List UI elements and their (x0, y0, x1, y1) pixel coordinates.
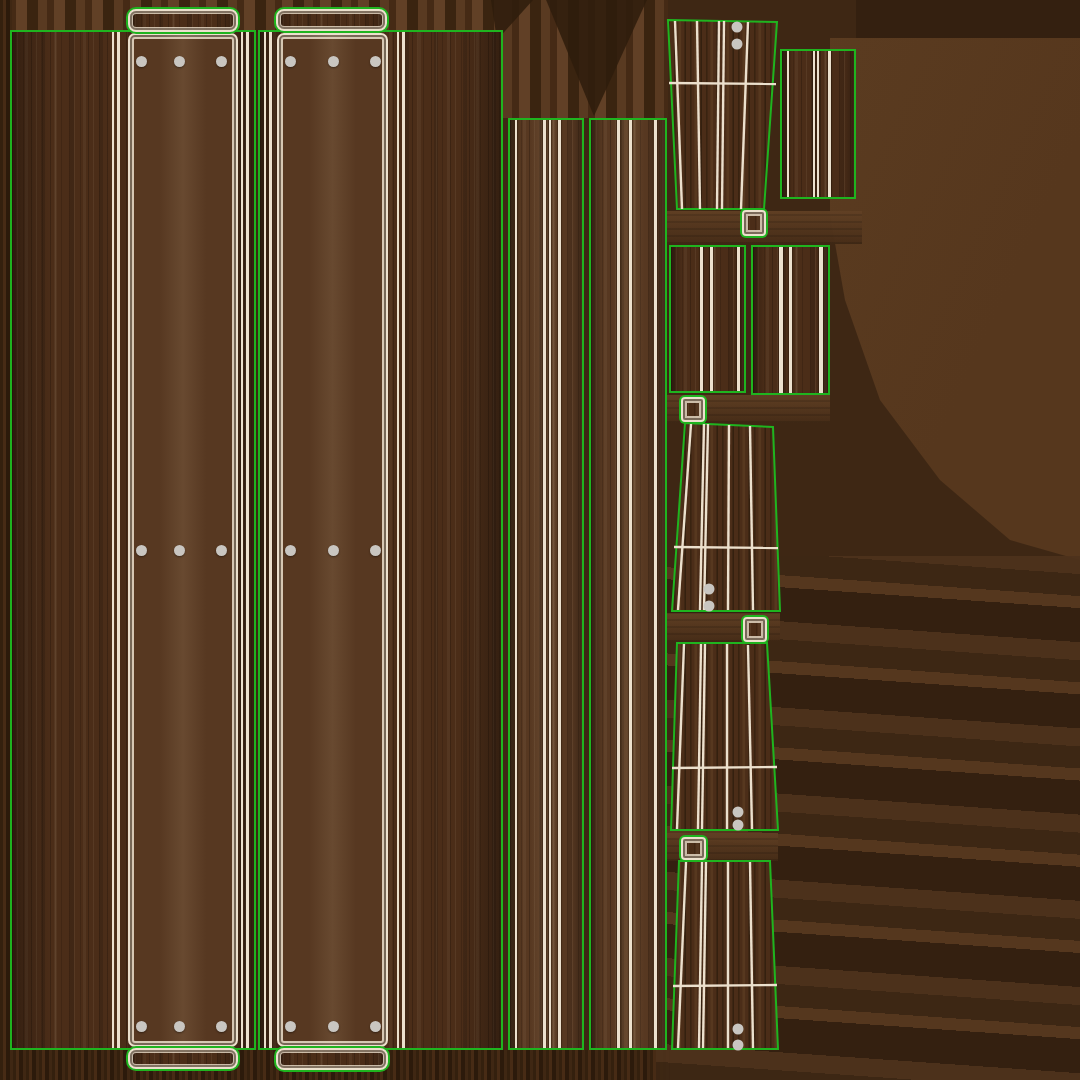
uv-island-leg-top (668, 20, 777, 209)
texture-canvas (0, 0, 1080, 1080)
bolt-dot (733, 820, 744, 831)
uv-island-leg-mid (672, 423, 780, 612)
uv-tab-bottom-left (128, 1048, 238, 1069)
bolt-dot (704, 584, 715, 595)
bolt-dot (733, 1024, 744, 1035)
bolt-dot (732, 22, 743, 33)
uv-cap-square-1 (742, 210, 766, 236)
bolt-dot (733, 1040, 744, 1051)
uv-tab-top-left (128, 9, 238, 32)
bolt-dot (733, 807, 744, 818)
uv-cap-square-2 (681, 397, 705, 422)
uv-island-leg-lower (671, 643, 778, 831)
bolt-dot (732, 39, 743, 50)
uv-island-leg-bottom (672, 861, 778, 1051)
uv-tab-bottom-right (276, 1048, 388, 1070)
uv-cap-square-4 (681, 837, 706, 860)
bolt-dot (704, 601, 715, 612)
trapezoid-islands-layer (0, 0, 1080, 1080)
uv-tab-top-right (276, 9, 387, 31)
uv-cap-square-3 (743, 617, 767, 642)
